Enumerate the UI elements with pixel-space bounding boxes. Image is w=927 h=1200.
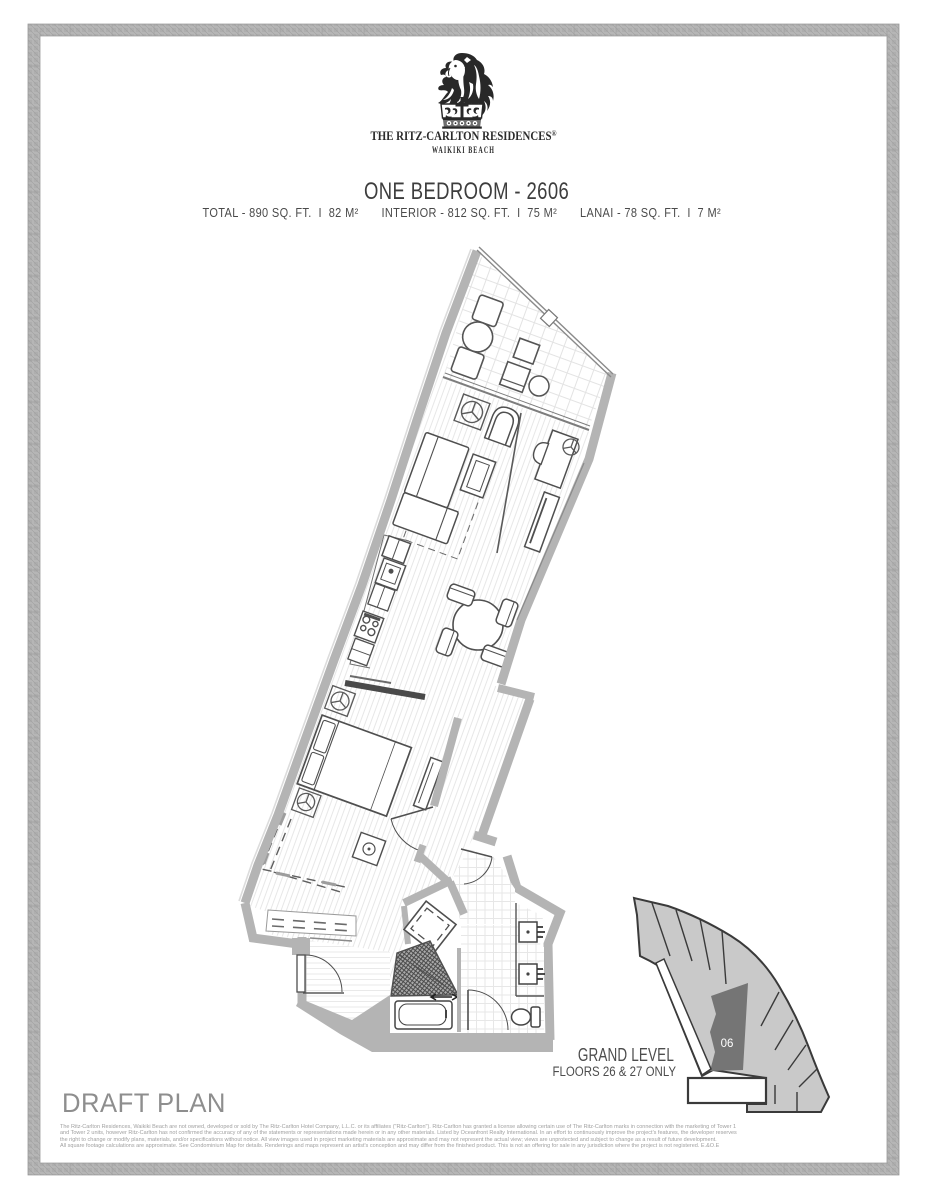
svg-text:06: 06 (721, 1038, 734, 1050)
